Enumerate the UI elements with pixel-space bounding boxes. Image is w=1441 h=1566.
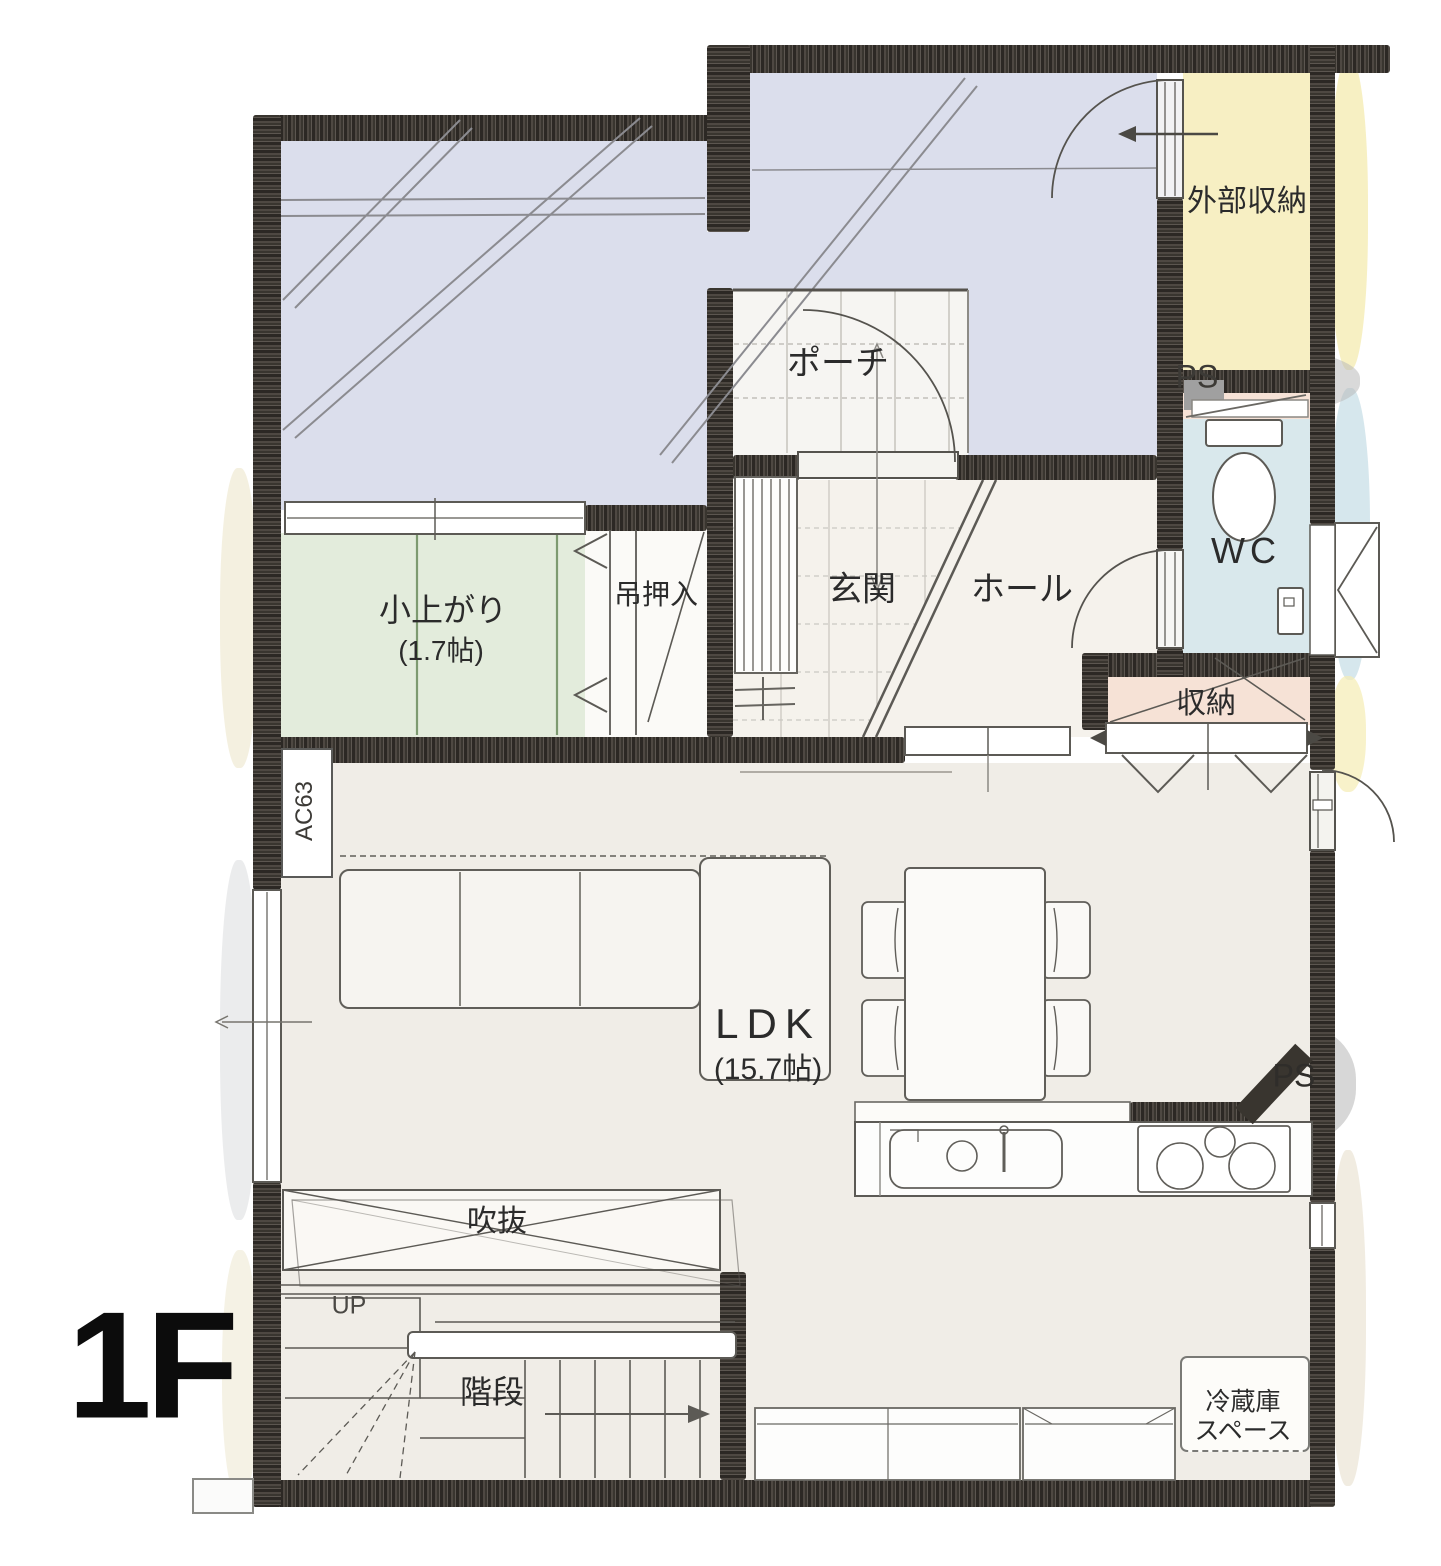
room-label-ps-upper: PS	[1176, 359, 1219, 396]
room-label-closet: 収納	[1176, 678, 1236, 722]
wall-kitchen-back	[1130, 1102, 1250, 1126]
wall-hall-top	[955, 455, 1157, 480]
wall-hall-right-lower	[1157, 648, 1183, 677]
room-label-entrance: 玄関	[828, 562, 896, 611]
wall-bottom	[253, 1480, 1335, 1507]
hanging-closet-area	[585, 528, 707, 737]
wall-carport-top	[253, 115, 710, 141]
wall-stairs-right	[720, 1272, 746, 1480]
room-label-exterior-storage: 外部収納	[1187, 176, 1307, 220]
wall-right-2	[1310, 655, 1335, 770]
room-label-hall: ホール	[971, 562, 1073, 611]
blob-right-blue	[1330, 388, 1370, 680]
floorplan-1f: 外部収納 ポーチ PS WC 玄関 ホール 小上がり (1.7帖) 吊押入 収納…	[0, 0, 1441, 1566]
floor-label: 1F	[67, 1279, 232, 1454]
carport-area-strip	[968, 290, 1157, 455]
wall-left-upper	[253, 115, 281, 890]
wall-right-4	[1310, 1248, 1335, 1507]
wall-closet-left	[1082, 653, 1108, 730]
wall-entrance-left	[707, 288, 733, 737]
room-label-ps-lower: PS	[1273, 1058, 1316, 1095]
wall-top-right	[710, 45, 1390, 73]
room-label-ldk: LDK	[715, 1000, 821, 1048]
blob-left-gray	[220, 860, 258, 1220]
room-label-ldk-size: (15.7帖)	[714, 1044, 822, 1088]
room-label-void: 吹抜	[467, 1196, 527, 1240]
room-label-porch: ポーチ	[787, 336, 889, 385]
wall-entrance-top-left	[733, 455, 800, 480]
carport-area-right	[750, 73, 1157, 290]
room-label-hanging-closet: 吊押入	[614, 573, 698, 613]
room-label-tatami-size: (1.7帖)	[398, 629, 484, 669]
blob-right-yellow	[1330, 58, 1368, 370]
room-label-fridge-line2: スペース	[1194, 1411, 1291, 1447]
room-label-wc: WC	[1211, 530, 1281, 572]
wall-hangingcloset-top	[585, 505, 707, 531]
wall-right-3	[1310, 850, 1335, 1203]
carport-area-gap	[707, 232, 750, 290]
blob-right-beige	[1330, 1150, 1366, 1486]
room-label-tatami-corner: 小上がり	[379, 585, 507, 631]
label-ac-unit: AC63	[291, 781, 319, 841]
room-label-stairs: 階段	[460, 1367, 524, 1413]
wall-right-1	[1310, 45, 1335, 525]
wall-closet-top	[1082, 653, 1335, 677]
blob-right-yellow2	[1330, 676, 1366, 792]
wall-left-lower	[253, 1182, 281, 1507]
carport-area-left	[281, 141, 707, 510]
wall-top-stub	[707, 45, 750, 232]
exterior-storage-area	[1183, 73, 1310, 370]
exterior-step	[192, 1478, 254, 1514]
label-stairs-up: UP	[332, 1292, 367, 1321]
wall-ldk-top	[253, 737, 905, 763]
